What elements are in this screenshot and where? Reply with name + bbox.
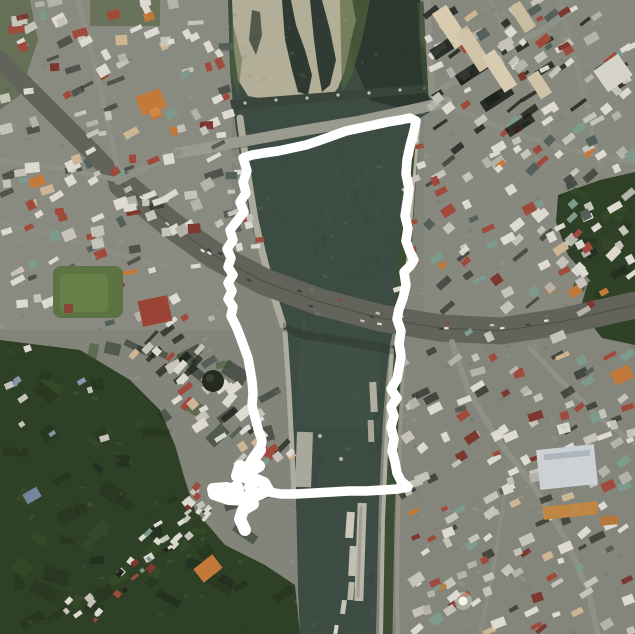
annotation-knot-blob (228, 481, 244, 497)
map-scene (0, 0, 635, 634)
satellite-map[interactable] (0, 0, 635, 634)
screenshot-root (0, 0, 635, 634)
annotation-knot-blob (244, 480, 258, 494)
